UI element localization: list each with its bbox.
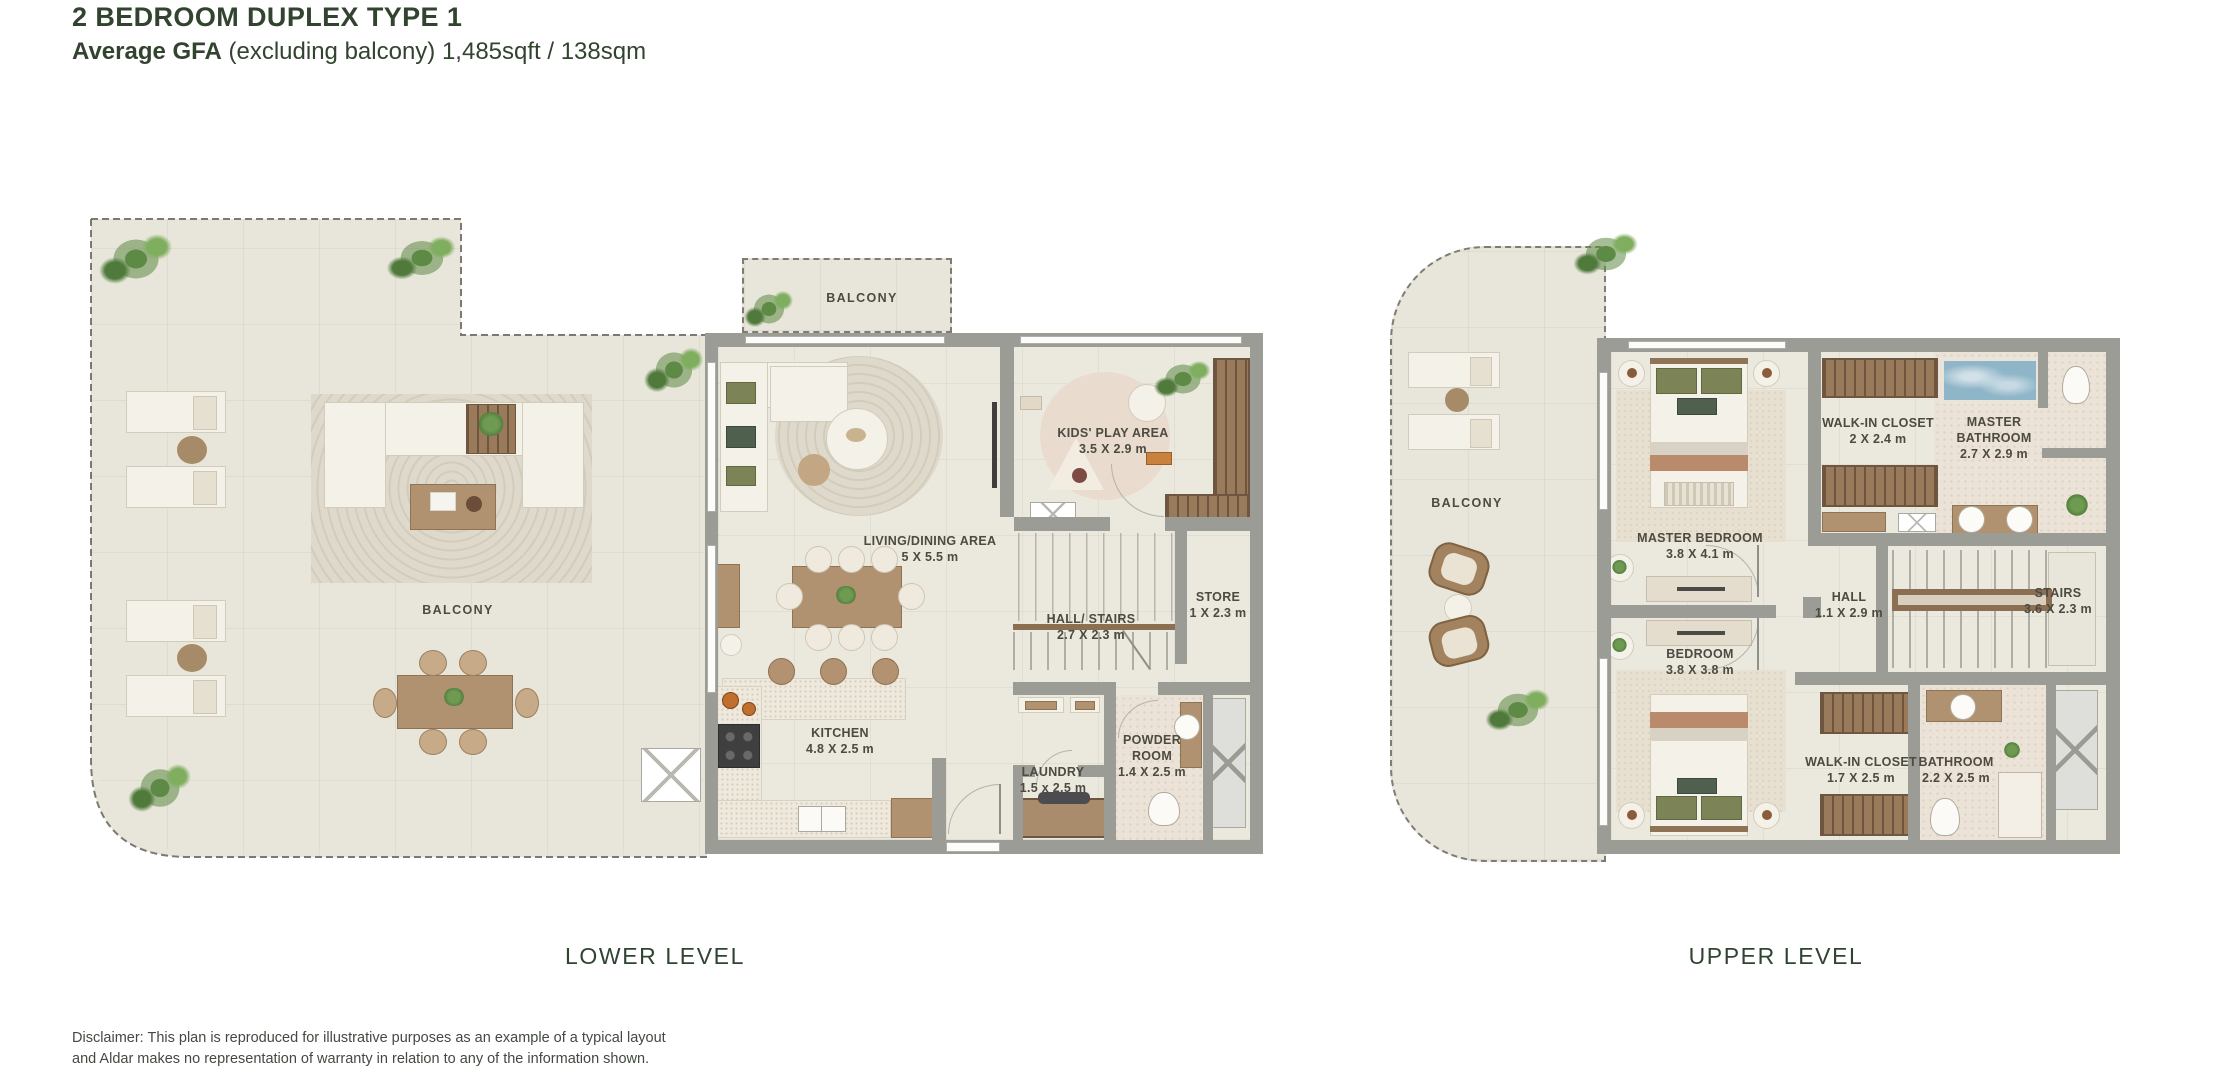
wardrobe xyxy=(1822,465,1938,507)
lounger-pillow xyxy=(193,396,217,430)
sun-lounger xyxy=(1408,352,1500,388)
sliding-door-window xyxy=(745,336,945,344)
plant-icon xyxy=(1155,356,1211,402)
bed-blanket xyxy=(1650,455,1748,471)
play-toy xyxy=(1072,468,1087,483)
chair-cushion xyxy=(1440,625,1480,660)
cooking-pan xyxy=(742,702,756,716)
floor-plan-page: 2 BEDROOM DUPLEX TYPE 1 Average GFA (exc… xyxy=(0,0,2220,1080)
dining-chair xyxy=(898,583,925,610)
room-label-hall-stairs: HALL/ STAIRS 2.7 X 2.3 m xyxy=(1047,611,1136,643)
potted-plant-icon xyxy=(1612,638,1627,652)
room-name: BALCONY xyxy=(826,290,898,306)
lounger-pillow xyxy=(193,680,217,714)
dining-chair xyxy=(838,546,865,573)
room-name: LAUNDRY xyxy=(1020,764,1087,780)
vase-icon xyxy=(1762,810,1772,820)
service-shaft xyxy=(2052,690,2098,810)
sink xyxy=(2006,506,2033,533)
bed-blanket xyxy=(1650,728,1748,741)
entry-opening xyxy=(946,842,1000,852)
room-name: BALCONY xyxy=(422,602,494,618)
room-label-laundry: LAUNDRY 1.5 x 2.5 m xyxy=(1020,764,1087,796)
room-name: KITCHEN xyxy=(806,725,874,741)
gfa-label: Average GFA xyxy=(72,38,222,65)
wall xyxy=(1000,347,1014,517)
wall xyxy=(1808,352,1821,545)
vase-icon xyxy=(1627,810,1637,820)
window xyxy=(1020,336,1242,344)
dining-chair xyxy=(805,624,832,651)
room-dims: 4.8 X 2.5 m xyxy=(806,741,874,757)
disclaimer-line-1: Disclaimer: This plan is reproduced for … xyxy=(72,1028,666,1049)
window xyxy=(1628,341,1786,349)
vase-icon xyxy=(1627,368,1637,378)
room-label-walkin-closet-1: WALK-IN CLOSET 2 X 2.4 m xyxy=(1822,415,1934,447)
room-name: MASTER BATHROOM xyxy=(1951,414,2037,446)
bathtub xyxy=(1940,357,2040,404)
cabinet-insert xyxy=(1075,701,1095,710)
wall xyxy=(1175,531,1187,664)
room-label-bedroom: BEDROOM 3.8 X 3.8 m xyxy=(1666,646,1734,678)
sink xyxy=(1950,694,1976,720)
palm-tree-icon xyxy=(1574,228,1638,280)
kitchen-sink xyxy=(798,806,846,832)
gfa-detail: (excluding balcony) 1,485sqft / 138sqm xyxy=(222,38,646,65)
cabinet-insert xyxy=(1025,701,1057,710)
wall xyxy=(1014,517,1110,531)
dining-chair xyxy=(776,583,803,610)
room-dims: 2.2 X 2.5 m xyxy=(1918,770,1993,786)
room-label-hall: HALL 1.1 X 2.9 m xyxy=(1815,589,1883,621)
dining-chair xyxy=(459,729,487,755)
sun-lounger xyxy=(1408,414,1500,450)
palm-tree-icon xyxy=(388,231,456,285)
dining-chair xyxy=(871,624,898,651)
potted-plant-icon xyxy=(835,586,857,604)
ottoman xyxy=(770,366,848,422)
outdoor-sofa-chaise xyxy=(324,402,386,508)
room-name: MASTER BEDROOM xyxy=(1637,530,1763,546)
sofa-pillow xyxy=(726,466,756,486)
cooking-pan xyxy=(722,692,739,709)
service-shaft xyxy=(1898,513,1936,532)
wall xyxy=(1013,682,1116,695)
side-table xyxy=(177,644,207,672)
wall xyxy=(932,758,946,850)
palm-tree-icon xyxy=(1486,684,1550,736)
room-name: WALK-IN CLOSET xyxy=(1822,415,1934,431)
wall xyxy=(2038,352,2048,408)
bed-blanket xyxy=(1650,712,1748,728)
closet-bench xyxy=(1822,512,1886,532)
lounger-pillow xyxy=(1470,357,1492,386)
room-name: WALK-IN CLOSET xyxy=(1805,754,1917,770)
chair-cushion xyxy=(1439,550,1480,587)
room-dims: 1.7 X 2.5 m xyxy=(1805,770,1917,786)
room-name: POWDER ROOM xyxy=(1112,732,1192,764)
table-tray xyxy=(846,428,866,442)
lower-level-caption: LOWER LEVEL xyxy=(565,943,745,970)
room-dims: 5 X 5.5 m xyxy=(864,549,997,565)
bed-cushion xyxy=(1677,398,1717,415)
room-label-balcony: BALCONY xyxy=(826,290,898,306)
palm-tree-icon xyxy=(100,228,172,290)
room-dims: 2.7 X 2.3 m xyxy=(1047,627,1136,643)
bed-blanket xyxy=(1650,442,1748,455)
upper-level-caption: UPPER LEVEL xyxy=(1689,943,1864,970)
wall xyxy=(2046,685,2056,843)
palm-tree-icon xyxy=(645,342,703,398)
room-label-powder: POWDER ROOM 1.4 X 2.5 m xyxy=(1112,732,1192,780)
room-dims: 2 X 2.4 m xyxy=(1822,431,1934,447)
bed-headboard xyxy=(1650,358,1748,364)
lounger-pillow xyxy=(193,471,217,505)
dining-chair xyxy=(838,624,865,651)
wall xyxy=(2042,448,2106,458)
palm-tree-icon xyxy=(129,758,191,818)
bed-pillow xyxy=(1656,368,1697,394)
wardrobe xyxy=(1820,692,1910,734)
wall xyxy=(2106,338,2120,854)
palm-tree-icon xyxy=(745,286,793,332)
room-name: LIVING/DINING AREA xyxy=(864,533,997,549)
room-label-walkin-closet-2: WALK-IN CLOSET 1.7 X 2.5 m xyxy=(1805,754,1917,786)
sink xyxy=(1958,506,1985,533)
bed-cushion xyxy=(1677,778,1717,794)
dining-chair xyxy=(373,688,397,718)
room-label-living-dining: LIVING/DINING AREA 5 X 5.5 m xyxy=(864,533,997,565)
room-dims: 1 X 2.3 m xyxy=(1190,605,1247,621)
bar-stool xyxy=(872,658,899,685)
potted-plant-icon xyxy=(478,412,504,436)
side-table xyxy=(1445,388,1469,412)
room-dims: 2.7 X 2.9 m xyxy=(1951,446,2037,462)
disclaimer-line-2: and Aldar makes no representation of war… xyxy=(72,1049,666,1070)
room-name: BEDROOM xyxy=(1666,646,1734,662)
dining-chair xyxy=(805,546,832,573)
console-table xyxy=(716,564,740,628)
toilet xyxy=(1148,792,1180,826)
wall xyxy=(1795,672,2106,685)
bed-pillow xyxy=(1701,796,1742,820)
room-dims: 3.5 X 2.9 m xyxy=(1057,441,1168,457)
side-table xyxy=(177,436,207,464)
cooktop xyxy=(718,724,760,768)
bed-bench xyxy=(1664,482,1734,506)
table-book xyxy=(430,492,456,511)
lounger-pillow xyxy=(193,605,217,639)
dining-chair xyxy=(515,688,539,718)
room-dims: 1.4 X 2.5 m xyxy=(1112,764,1192,780)
window xyxy=(1599,372,1608,510)
dining-chair xyxy=(419,650,447,676)
room-name: KIDS' PLAY AREA xyxy=(1057,425,1168,441)
door-leaf xyxy=(1757,618,1759,670)
room-name: STORE xyxy=(1190,589,1247,605)
outdoor-sofa-chaise xyxy=(522,402,584,508)
potted-plant-icon xyxy=(2066,494,2088,516)
bed-headboard xyxy=(1650,826,1748,832)
vase-icon xyxy=(1762,368,1772,378)
wall xyxy=(1250,333,1263,854)
room-label-kitchen: KITCHEN 4.8 X 2.5 m xyxy=(806,725,874,757)
sun-lounger xyxy=(126,466,226,508)
service-shaft xyxy=(1210,698,1246,828)
sun-lounger xyxy=(126,675,226,717)
room-name: STAIRS xyxy=(2024,585,2092,601)
sofa-pillow xyxy=(726,426,756,448)
wall xyxy=(1808,533,2106,546)
shower xyxy=(1998,772,2042,838)
wall xyxy=(1158,682,1250,695)
wall xyxy=(1611,605,1776,618)
kitchen-cabinet xyxy=(891,798,937,838)
wall xyxy=(1597,840,2120,854)
potted-plant-icon xyxy=(443,688,465,706)
room-name: HALL/ STAIRS xyxy=(1047,611,1136,627)
room-name: BATHROOM xyxy=(1918,754,1993,770)
dining-chair xyxy=(419,729,447,755)
sofa-pillow xyxy=(726,382,756,404)
page-title: 2 BEDROOM DUPLEX TYPE 1 xyxy=(72,2,462,33)
play-toy xyxy=(1020,396,1042,410)
window xyxy=(707,362,716,512)
room-label-stairs: STAIRS 3.6 X 2.3 m xyxy=(2024,585,2092,617)
wall xyxy=(1203,695,1213,845)
door-leaf xyxy=(999,784,1001,834)
room-label-terrace-balcony: BALCONY xyxy=(422,602,494,618)
room-dims: 3.8 X 4.1 m xyxy=(1637,546,1763,562)
toilet xyxy=(1930,798,1960,836)
room-label-master-bedroom: MASTER BEDROOM 3.8 X 4.1 m xyxy=(1637,530,1763,562)
stool xyxy=(720,634,742,656)
room-dims: 1.5 x 2.5 m xyxy=(1020,780,1087,796)
table-bowl xyxy=(466,496,482,512)
toilet xyxy=(2062,366,2090,404)
room-name: HALL xyxy=(1815,589,1883,605)
lounger-pillow xyxy=(1470,419,1492,448)
potted-plant-icon xyxy=(2004,742,2020,758)
bar-stool xyxy=(820,658,847,685)
dining-chair xyxy=(459,650,487,676)
gfa-subtitle: Average GFA (excluding balcony) 1,485sqf… xyxy=(72,38,646,66)
hall-cabinet xyxy=(1070,697,1100,713)
wall xyxy=(1165,517,1250,531)
sun-lounger xyxy=(126,600,226,642)
bar-stool xyxy=(768,658,795,685)
stairs-upper-flight xyxy=(1018,533,1176,621)
room-label-bathroom: BATHROOM 2.2 X 2.5 m xyxy=(1918,754,1993,786)
bed-pillow xyxy=(1656,796,1697,820)
room-label-store: STORE 1 X 2.3 m xyxy=(1190,589,1247,621)
wardrobe xyxy=(1820,794,1910,836)
room-label-master-bathroom: MASTER BATHROOM 2.7 X 2.9 m xyxy=(1951,414,2037,462)
disclaimer: Disclaimer: This plan is reproduced for … xyxy=(72,1028,666,1069)
upper-balcony xyxy=(1390,246,1606,862)
wardrobe xyxy=(1822,358,1938,398)
bed-pillow xyxy=(1701,368,1742,394)
sun-lounger xyxy=(126,391,226,433)
tv-console xyxy=(992,402,997,488)
room-dims: 1.1 X 2.9 m xyxy=(1815,605,1883,621)
hall-cabinet xyxy=(1018,697,1064,713)
side-table xyxy=(798,454,830,486)
potted-plant-icon xyxy=(1612,560,1627,574)
washing-machine xyxy=(1020,798,1107,838)
room-label-kids-play: KIDS' PLAY AREA 3.5 X 2.9 m xyxy=(1057,425,1168,457)
room-dims: 3.8 X 3.8 m xyxy=(1666,662,1734,678)
ac-unit-pad xyxy=(641,748,701,802)
window xyxy=(1599,658,1608,826)
room-label-upper-balcony: BALCONY xyxy=(1431,495,1503,511)
room-dims: 3.6 X 2.3 m xyxy=(2024,601,2092,617)
window xyxy=(707,545,716,693)
room-name: BALCONY xyxy=(1431,495,1503,511)
